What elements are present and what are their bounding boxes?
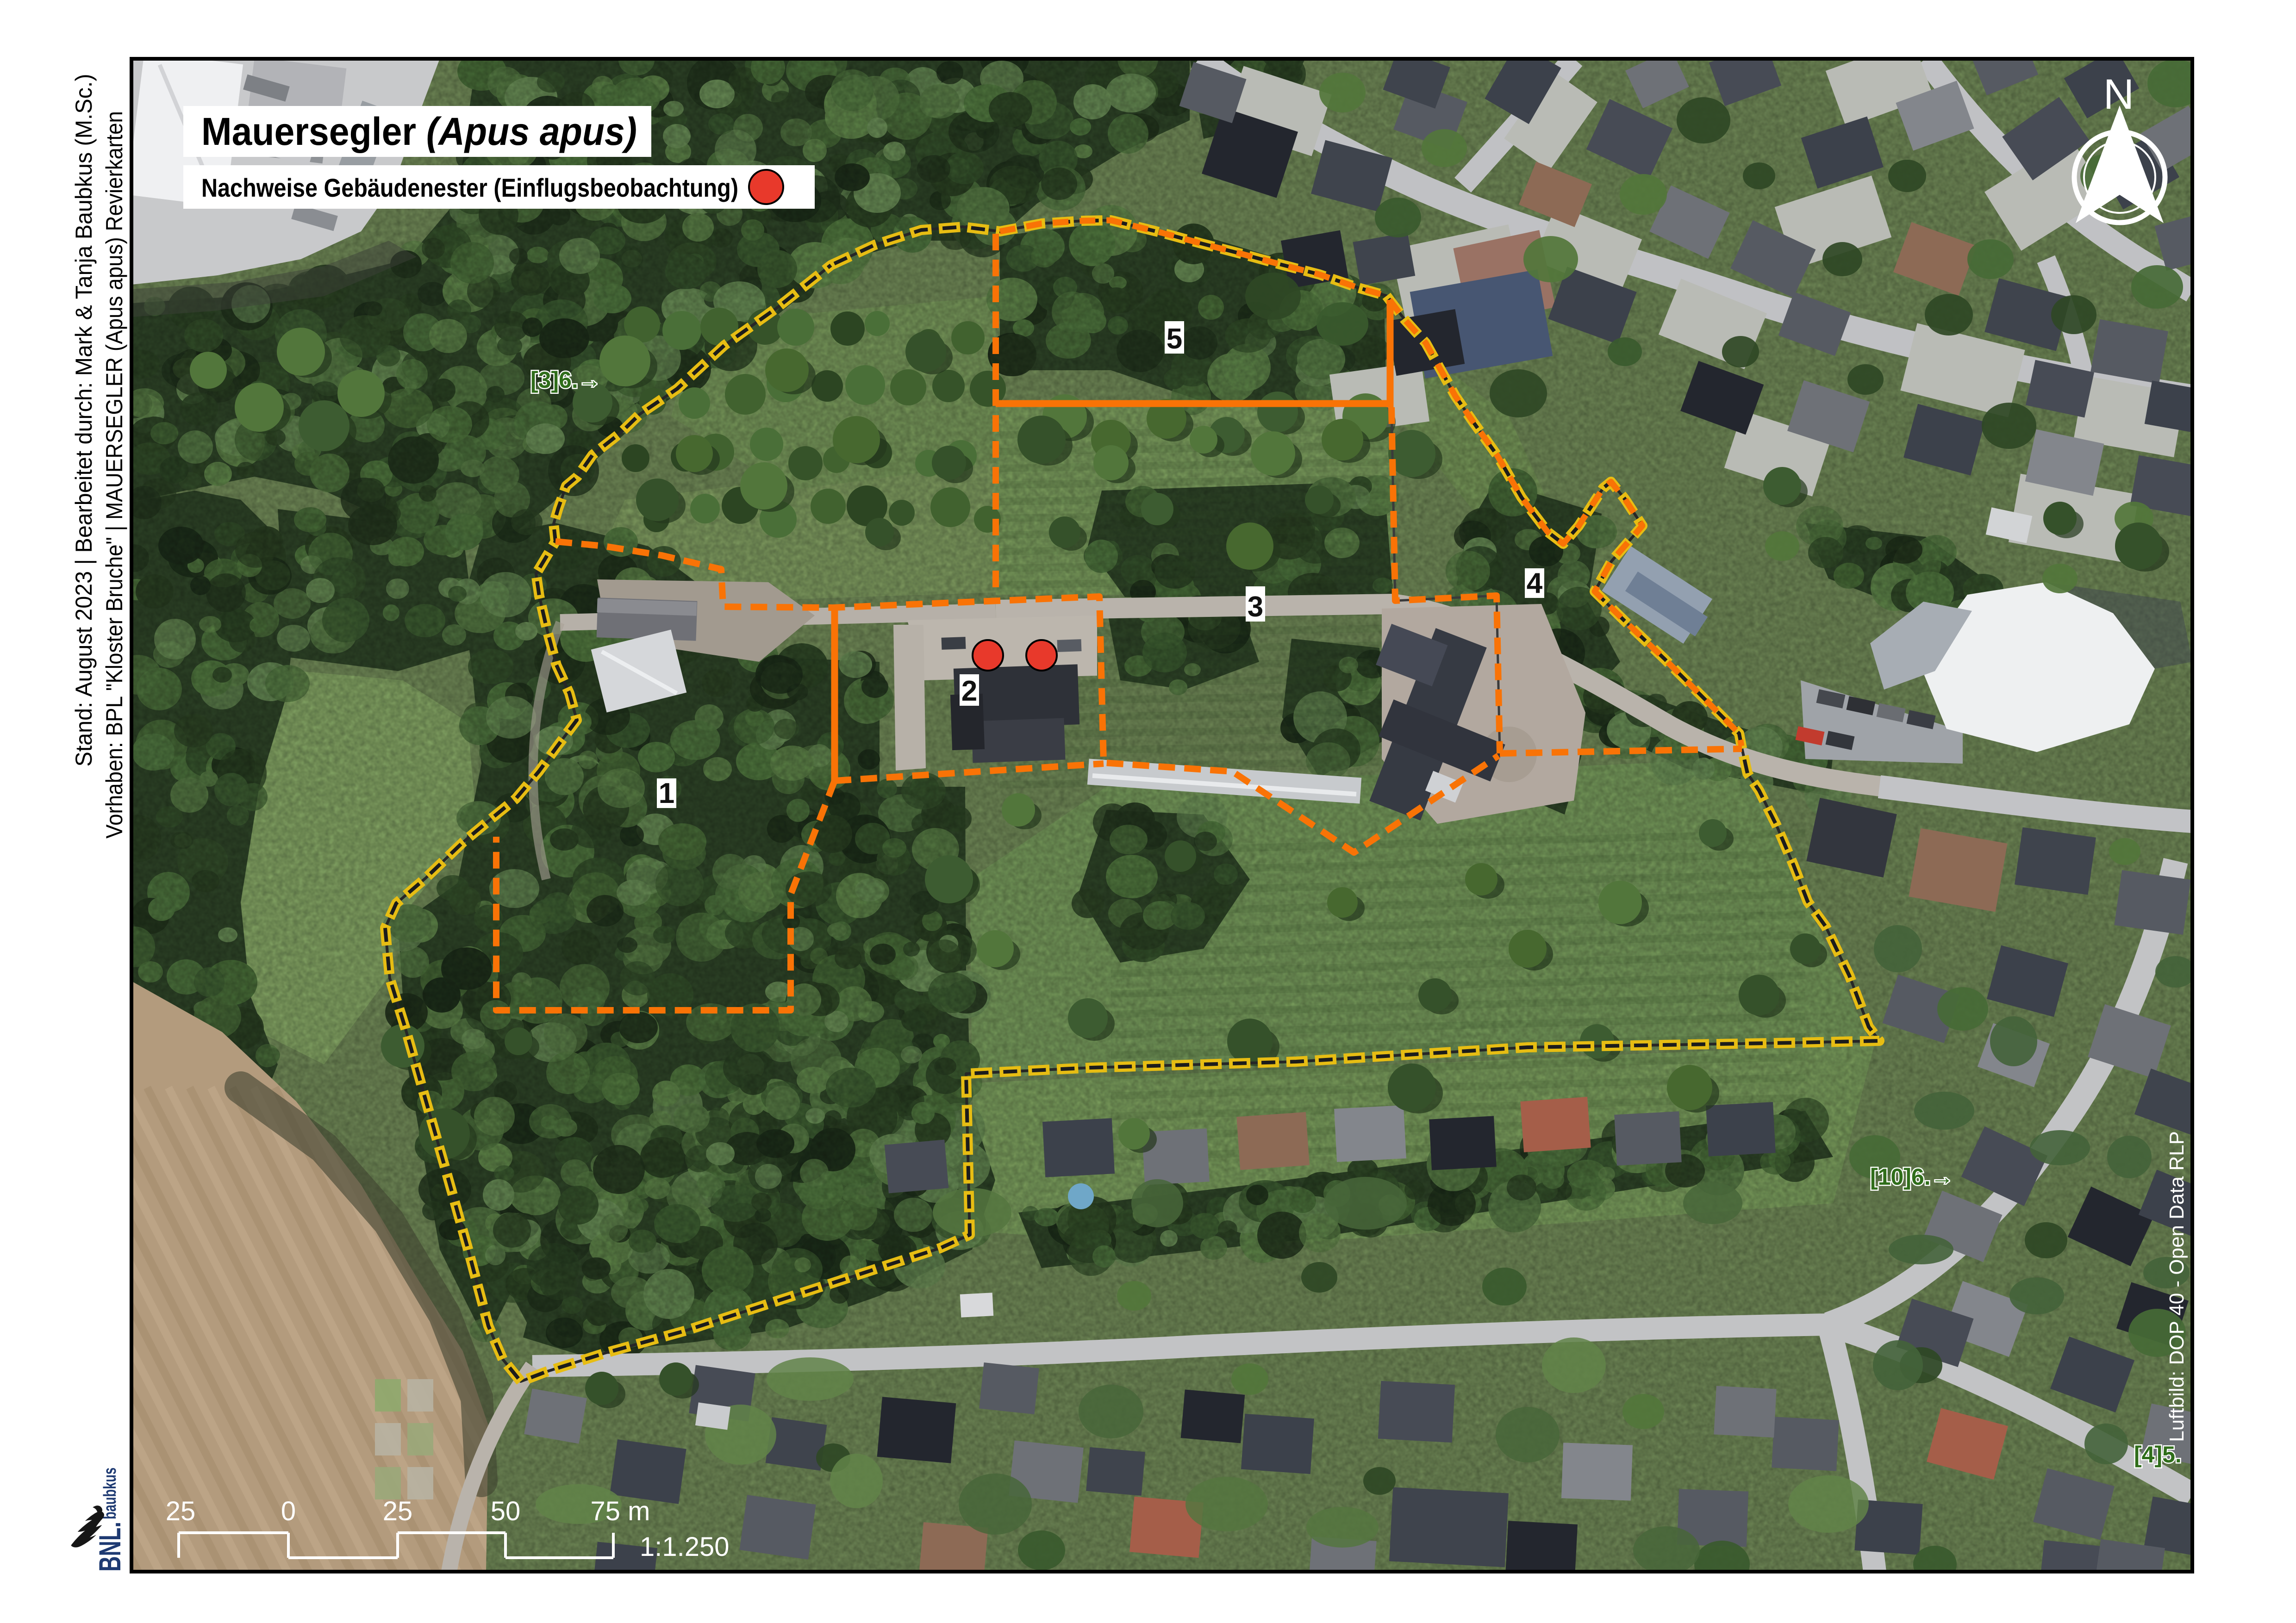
svg-text:2: 2	[961, 675, 977, 707]
svg-text:25: 25	[383, 1496, 413, 1526]
svg-text:4: 4	[1527, 567, 1543, 599]
svg-text:75 m: 75 m	[591, 1496, 650, 1526]
svg-text:25: 25	[166, 1496, 196, 1526]
svg-text:1: 1	[659, 777, 674, 809]
svg-text:Vorhaben: BPL "Kloster Bruche": Vorhaben: BPL "Kloster Bruche" | MAUERSE…	[101, 111, 127, 839]
svg-text:Mauersegler (Apus apus): Mauersegler (Apus apus)	[201, 110, 637, 153]
svg-text:50: 50	[491, 1496, 521, 1526]
svg-text:[4]5.: [4]5.	[2134, 1442, 2182, 1468]
svg-text:[3]6.→: [3]6.→	[530, 367, 601, 393]
svg-text:baubkus: baubkus	[100, 1468, 120, 1519]
svg-text:0: 0	[281, 1496, 296, 1526]
svg-text:5: 5	[1167, 323, 1182, 355]
svg-text:[10]6.→: [10]6.→	[1870, 1164, 1954, 1190]
svg-text:1:1.250: 1:1.250	[640, 1532, 730, 1562]
svg-text:Nachweise Gebäudenester (Einfl: Nachweise Gebäudenester (Einflugsbeobach…	[201, 173, 738, 202]
svg-text:Luftbild: DOP 40 - Open Data R: Luftbild: DOP 40 - Open Data RLP	[2165, 1131, 2188, 1442]
svg-text:3: 3	[1248, 591, 1263, 623]
svg-text:Stand: August 2023 | Bearbeite: Stand: August 2023 | Bearbeitet durch: M…	[71, 74, 97, 767]
